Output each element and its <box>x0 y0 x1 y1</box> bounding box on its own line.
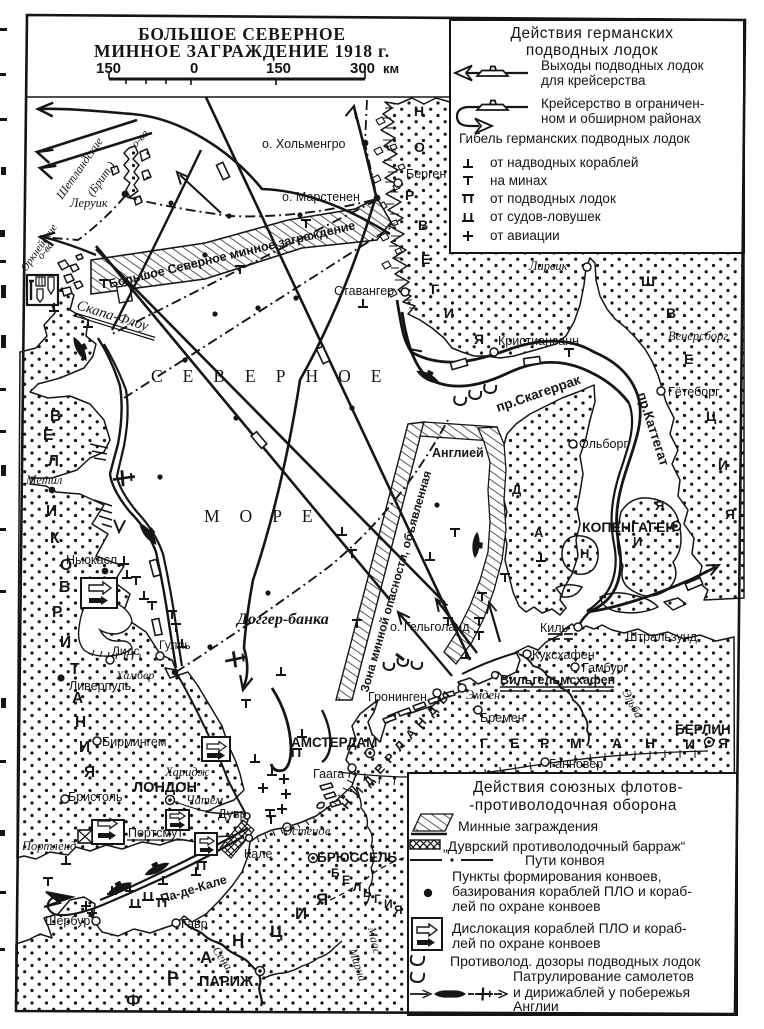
svg-text:Ньюкасл: Ньюкасл <box>66 553 117 567</box>
svg-text:Ц: Ц <box>270 922 283 941</box>
svg-text:Портленд: Портленд <box>21 839 76 853</box>
svg-text:Р: Р <box>540 735 549 751</box>
svg-text:Ставангер: Ставангер <box>334 284 394 298</box>
svg-text:А: А <box>534 525 544 540</box>
svg-text:Штральзунд: Штральзунд <box>626 630 698 644</box>
svg-text:от подводных лодок: от подводных лодок <box>490 191 616 206</box>
svg-text:А: А <box>200 948 212 967</box>
svg-text:Гулль: Гулль <box>159 638 191 652</box>
svg-text:В: В <box>50 408 61 425</box>
svg-text:о. Хольменгро: о. Хольменгро <box>262 137 346 151</box>
svg-text:Противолод. дозоры подводных л: Противолод. дозоры подводных лодок <box>450 953 701 969</box>
svg-text:О: О <box>414 139 425 155</box>
svg-text:Я: Я <box>655 498 664 513</box>
svg-text:Г: Г <box>374 892 381 906</box>
svg-text:И: И <box>685 736 695 752</box>
svg-text:Бирмингем: Бирмингем <box>102 735 166 749</box>
svg-text:Киль: Киль <box>540 621 568 635</box>
svg-text:Шербур: Шербур <box>45 914 90 928</box>
svg-text:150: 150 <box>266 60 291 77</box>
svg-text:от судов-ловушек: от судов-ловушек <box>490 209 601 224</box>
svg-text:Е: Е <box>421 251 430 267</box>
svg-text:Чатем: Чатем <box>186 793 223 807</box>
svg-text:И: И <box>60 634 71 651</box>
svg-text:Г: Г <box>480 735 488 751</box>
svg-text:Ольборг: Ольборг <box>579 437 628 451</box>
svg-text:Кале: Кале <box>244 847 273 861</box>
svg-text:Ь: Ь <box>363 886 372 900</box>
svg-text:ПАРИЖ: ПАРИЖ <box>199 974 254 990</box>
svg-text:Р: Р <box>405 187 414 203</box>
svg-text:Гётеборг: Гётеборг <box>668 385 720 399</box>
svg-text:на минах: на минах <box>490 173 547 188</box>
svg-text:от авиации: от авиации <box>490 228 560 243</box>
svg-text:Минные заграждения: Минные заграждения <box>458 818 598 834</box>
svg-text:Патрулирование самолетов: Патрулирование самолетов <box>513 968 694 984</box>
svg-text:подводных лодок: подводных лодок <box>526 42 658 59</box>
svg-text:Лидс: Лидс <box>112 644 140 658</box>
svg-text:Е: Е <box>684 351 693 367</box>
svg-text:Куксхафен: Куксхафен <box>532 648 595 662</box>
svg-text:Крейсерство в ограничен-: Крейсерство в ограничен- <box>541 96 704 111</box>
svg-text:Гронинген: Гронинген <box>368 690 427 704</box>
svg-text:Е: Е <box>510 735 519 751</box>
svg-text:Д: Д <box>512 482 522 497</box>
svg-text:Леруик: Леруик <box>69 196 108 210</box>
svg-text:для крейсерства: для крейсерства <box>541 73 646 88</box>
svg-text:Н: Н <box>75 714 86 731</box>
svg-text:Р: Р <box>167 968 178 987</box>
svg-text:км: км <box>383 61 399 76</box>
svg-text:-противолодочная оборона: -противолодочная оборона <box>469 797 677 814</box>
svg-text:ном и обширном районах: ном и обширном районах <box>541 111 701 126</box>
svg-text:Эмден: Эмден <box>466 688 500 702</box>
svg-text:Ш: Ш <box>641 273 655 289</box>
svg-text:Вильгельмсхафен: Вильгельмсхафен <box>500 673 615 687</box>
svg-text:Берген: Берген <box>406 167 446 181</box>
svg-text:Метил: Метил <box>25 473 63 487</box>
svg-text:Я: Я <box>474 331 484 347</box>
svg-text:Л: Л <box>353 880 361 894</box>
svg-text:Ларвик: Ларвик <box>528 259 568 273</box>
svg-text:КОПЕНГАГЕН: КОПЕНГАГЕН <box>582 519 676 535</box>
svg-text:Я: Я <box>394 903 403 917</box>
svg-text:И: И <box>295 904 307 923</box>
svg-text:Б: Б <box>331 866 340 880</box>
svg-text:Гибель германских подводных ло: Гибель германских подводных лодок <box>459 131 690 146</box>
svg-text:Гаага: Гаага <box>313 767 344 781</box>
svg-text:Н: Н <box>580 546 589 561</box>
svg-text:Действия союзных флотов-: Действия союзных флотов- <box>473 779 683 796</box>
svg-text:Венерсборг: Венерсборг <box>668 329 728 343</box>
svg-text:М: М <box>570 735 582 751</box>
svg-text:И: И <box>79 739 90 756</box>
svg-text:Англии: Англии <box>513 998 559 1014</box>
svg-text:А: А <box>612 735 622 751</box>
svg-text:Бремен: Бремен <box>480 711 525 725</box>
svg-text:Ц: Ц <box>706 408 717 424</box>
svg-text:Пути конвоя: Пути конвоя <box>525 852 605 868</box>
svg-text:Е: Е <box>342 873 350 887</box>
svg-text:Я: Я <box>725 506 735 522</box>
svg-text:лей по охране конвоев: лей по охране конвоев <box>452 898 601 914</box>
svg-text:300: 300 <box>350 60 375 77</box>
svg-text:Действия германских: Действия германских <box>510 25 673 42</box>
svg-text:СЕВЕРНОЕ: СЕВЕРНОЕ <box>151 366 401 386</box>
svg-text:Р: Р <box>52 604 62 621</box>
svg-text:Кристиансанн: Кристиансанн <box>498 334 579 348</box>
svg-text:Т: Т <box>70 661 80 678</box>
svg-text:от надводных кораблей: от надводных кораблей <box>490 155 638 170</box>
svg-text:базирования кораблей ПЛО и кор: базирования кораблей ПЛО и кораб- <box>452 883 692 899</box>
svg-text:И: И <box>46 503 57 520</box>
svg-text:И: И <box>718 457 728 473</box>
svg-text:В: В <box>666 305 676 321</box>
svg-text:Е: Е <box>43 427 53 444</box>
svg-text:Англией: Англией <box>432 446 484 460</box>
svg-text:АМСТЕРДАМ: АМСТЕРДАМ <box>291 735 377 750</box>
svg-text:Дислокация кораблей ПЛО и кора: Дислокация кораблей ПЛО и кораб- <box>452 920 687 936</box>
svg-text:0: 0 <box>190 60 198 77</box>
svg-text:Я: Я <box>718 735 728 751</box>
svg-text:Гавр: Гавр <box>181 917 208 931</box>
svg-text:Н: Н <box>645 735 655 751</box>
svg-text:Ганновер: Ганновер <box>549 757 603 771</box>
svg-text:Я: Я <box>316 890 328 909</box>
svg-text:В: В <box>418 217 428 233</box>
svg-text:О: О <box>60 557 72 574</box>
svg-text:о. Гельголанд: о. Гельголанд <box>390 620 470 634</box>
svg-text:Выходы подводных лодок: Выходы подводных лодок <box>541 58 704 73</box>
svg-text:Портсмут: Портсмут <box>128 826 183 840</box>
svg-text:лей по охране конвоев: лей по охране конвоев <box>452 935 601 951</box>
svg-text:Я: Я <box>84 764 95 781</box>
svg-text:МОРЕ: МОРЕ <box>204 506 333 526</box>
svg-text:Н: Н <box>232 931 244 950</box>
svg-text:БРЮССЕЛЬ: БРЮССЕЛЬ <box>317 850 397 865</box>
svg-text:Л: Л <box>48 453 59 470</box>
svg-text:Ф: Ф <box>126 991 141 1010</box>
svg-text:А: А <box>72 690 83 707</box>
svg-text:И: И <box>633 534 642 549</box>
svg-text:МИННОЕ ЗАГРАЖДЕНИЕ 1918 г.: МИННОЕ ЗАГРАЖДЕНИЕ 1918 г. <box>94 41 390 61</box>
svg-text:Пункты формирования конвоев,: Пункты формирования конвоев, <box>452 868 662 884</box>
svg-text:Г: Г <box>431 281 439 297</box>
svg-text:Харидж: Харидж <box>164 765 210 779</box>
svg-text:И: И <box>444 305 454 321</box>
svg-text:о. Марстенен: о. Марстенен <box>282 190 360 204</box>
svg-text:Дувр: Дувр <box>218 807 247 821</box>
svg-text:Бристоль: Бристоль <box>68 790 122 804</box>
svg-text:К: К <box>50 530 60 547</box>
svg-text:Н: Н <box>414 103 424 119</box>
svg-text:Доггер-банка: Доггер-банка <box>235 611 329 628</box>
svg-text:И: И <box>384 897 393 911</box>
svg-text:Остенде: Остенде <box>283 824 331 838</box>
svg-text:Б: Б <box>59 579 70 596</box>
